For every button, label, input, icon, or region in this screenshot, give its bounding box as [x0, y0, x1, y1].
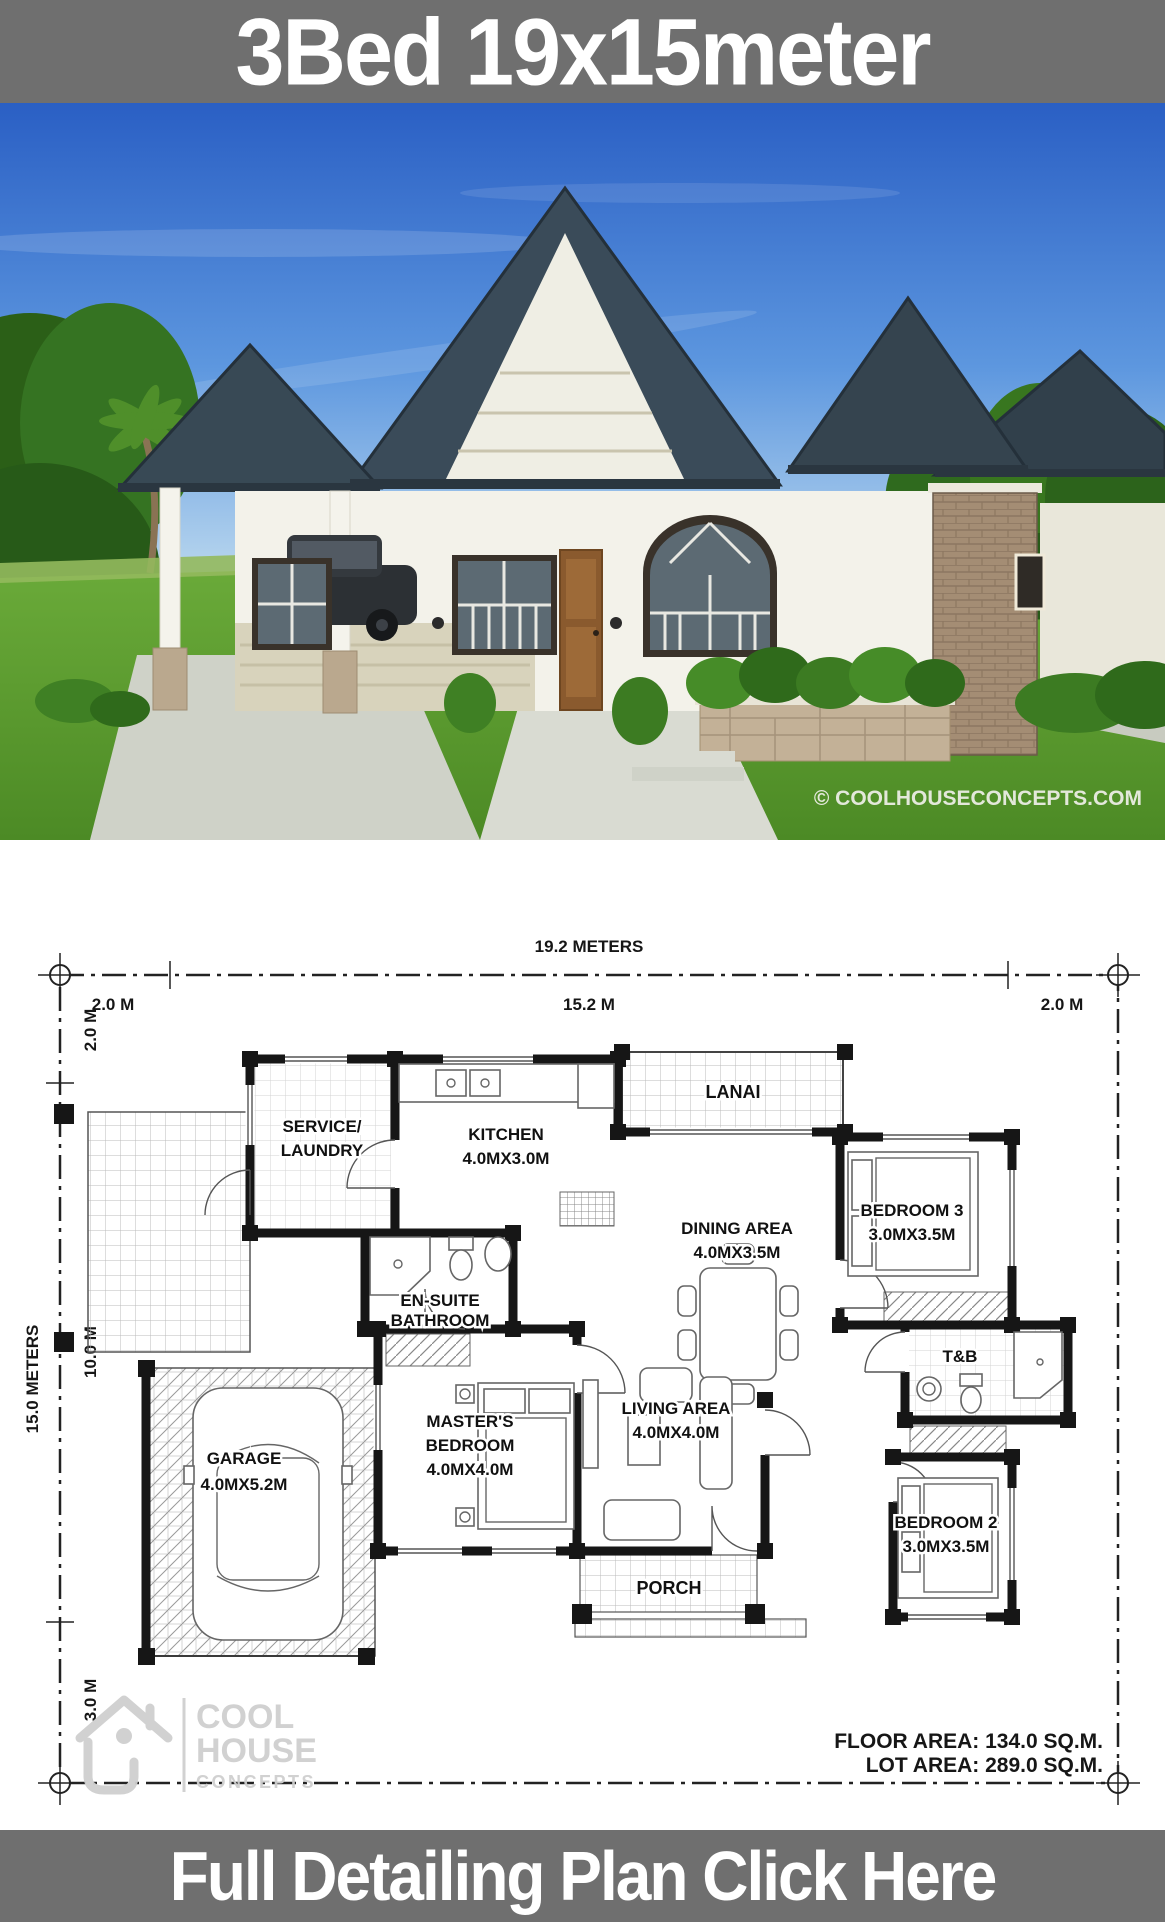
lot-area-value: LOT AREA: 289.0 SQ.M.	[866, 1754, 1103, 1777]
svg-text:EN-SUITE: EN-SUITE	[400, 1291, 479, 1310]
patio-tiles	[88, 1112, 250, 1352]
room-label-tb: T&B	[943, 1347, 978, 1366]
coolhouseconcepts-logo: COOL HOUSE CONCEPTS	[80, 1698, 317, 1792]
svg-text:SERVICE/: SERVICE/	[282, 1117, 361, 1136]
svg-text:LANAI: LANAI	[706, 1082, 761, 1102]
wall-lamp-icon	[610, 617, 622, 629]
photo-watermark: © COOLHOUSECONCEPTS.COM	[814, 787, 1142, 810]
dim-left-total: 15.0 METERS	[23, 1325, 42, 1434]
svg-text:LAUNDRY: LAUNDRY	[281, 1141, 364, 1160]
svg-text:4.0MX3.5M: 4.0MX3.5M	[694, 1243, 781, 1262]
svg-text:CONCEPTS: CONCEPTS	[196, 1772, 316, 1792]
front-door	[560, 550, 602, 710]
room-label-ensuite: EN-SUITEBATHROOM	[391, 1291, 490, 1330]
svg-text:DINING AREA: DINING AREA	[681, 1219, 793, 1238]
svg-text:BEDROOM 3: BEDROOM 3	[861, 1201, 964, 1220]
room-label-dining: DINING AREA4.0MX3.5M	[681, 1219, 793, 1262]
svg-text:KITCHEN: KITCHEN	[468, 1125, 544, 1144]
closet	[884, 1292, 1008, 1321]
closet	[910, 1426, 1006, 1453]
page-title: 3Bed 19x15meter	[235, 4, 929, 99]
room-label-lanai: LANAI	[706, 1082, 761, 1102]
svg-text:HOUSE: HOUSE	[196, 1732, 317, 1770]
dim-left-bottom: 3.0 M	[81, 1679, 100, 1722]
room-label-master: MASTER'SBEDROOM4.0MX4.0M	[426, 1412, 515, 1479]
svg-text:4.0MX3.0M: 4.0MX3.0M	[463, 1149, 550, 1168]
kitchen-island	[560, 1192, 614, 1226]
side-window	[1016, 555, 1044, 609]
svg-text:BEDROOM: BEDROOM	[426, 1436, 515, 1455]
dim-top-total: 19.2 METERS	[535, 937, 644, 956]
room-label-kitchen: KITCHEN4.0MX3.0M	[463, 1125, 550, 1168]
wall-lamp-icon	[432, 617, 444, 629]
svg-text:LIVING AREA: LIVING AREA	[622, 1399, 731, 1418]
floor-plan: 19.2 METERS 2.0 M 15.2 M 2.0 M 15.0 METE…	[0, 840, 1165, 1830]
svg-text:PORCH: PORCH	[636, 1578, 701, 1598]
svg-text:4.0MX5.2M: 4.0MX5.2M	[201, 1475, 288, 1494]
svg-text:T&B: T&B	[943, 1347, 978, 1366]
pin-image: 3Bed 19x15meter	[0, 0, 1165, 1922]
svg-text:GARAGE: GARAGE	[207, 1449, 282, 1468]
room-label-porch: PORCH	[636, 1578, 701, 1598]
svg-text:BATHROOM: BATHROOM	[391, 1311, 490, 1330]
svg-text:4.0MX4.0M: 4.0MX4.0M	[427, 1460, 514, 1479]
svg-text:4.0MX4.0M: 4.0MX4.0M	[633, 1423, 720, 1442]
closet	[386, 1334, 470, 1366]
svg-text:3.0MX3.5M: 3.0MX3.5M	[903, 1537, 990, 1556]
title-bar: 3Bed 19x15meter	[0, 0, 1165, 103]
house-photo: © COOLHOUSECONCEPTS.COM	[0, 103, 1165, 840]
dim-top-right: 2.0 M	[1041, 995, 1084, 1014]
cta-label[interactable]: Full Detailing Plan Click Here	[170, 1841, 996, 1910]
porch-step	[575, 1619, 806, 1637]
floor-area-value: FLOOR AREA: 134.0 SQ.M.	[834, 1730, 1103, 1753]
svg-text:COOL: COOL	[196, 1698, 294, 1736]
dim-left-top: 2.0 M	[81, 1009, 100, 1052]
svg-text:3.0MX3.5M: 3.0MX3.5M	[869, 1225, 956, 1244]
svg-text:MASTER'S: MASTER'S	[426, 1412, 513, 1431]
cta-bar[interactable]: Full Detailing Plan Click Here	[0, 1830, 1165, 1922]
dim-top-mid: 15.2 M	[563, 995, 615, 1014]
svg-text:BEDROOM 2: BEDROOM 2	[895, 1513, 998, 1532]
